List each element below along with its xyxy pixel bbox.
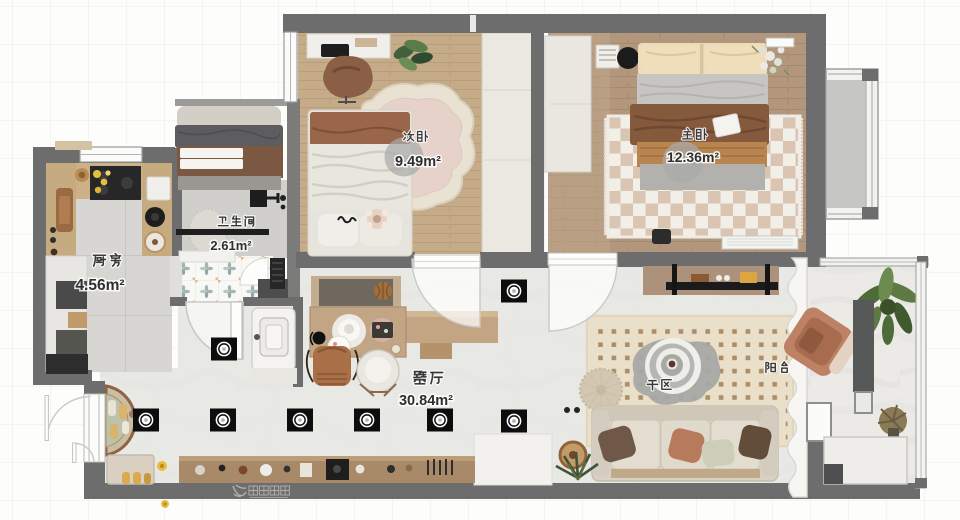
svg-text:30.84m²: 30.84m²	[399, 393, 453, 409]
svg-text:4.56m²: 4.56m²	[75, 277, 124, 294]
svg-text:9.49m²: 9.49m²	[395, 154, 441, 170]
svg-text:2.61m²: 2.61m²	[210, 238, 252, 253]
svg-text:12.36m²: 12.36m²	[667, 149, 719, 165]
